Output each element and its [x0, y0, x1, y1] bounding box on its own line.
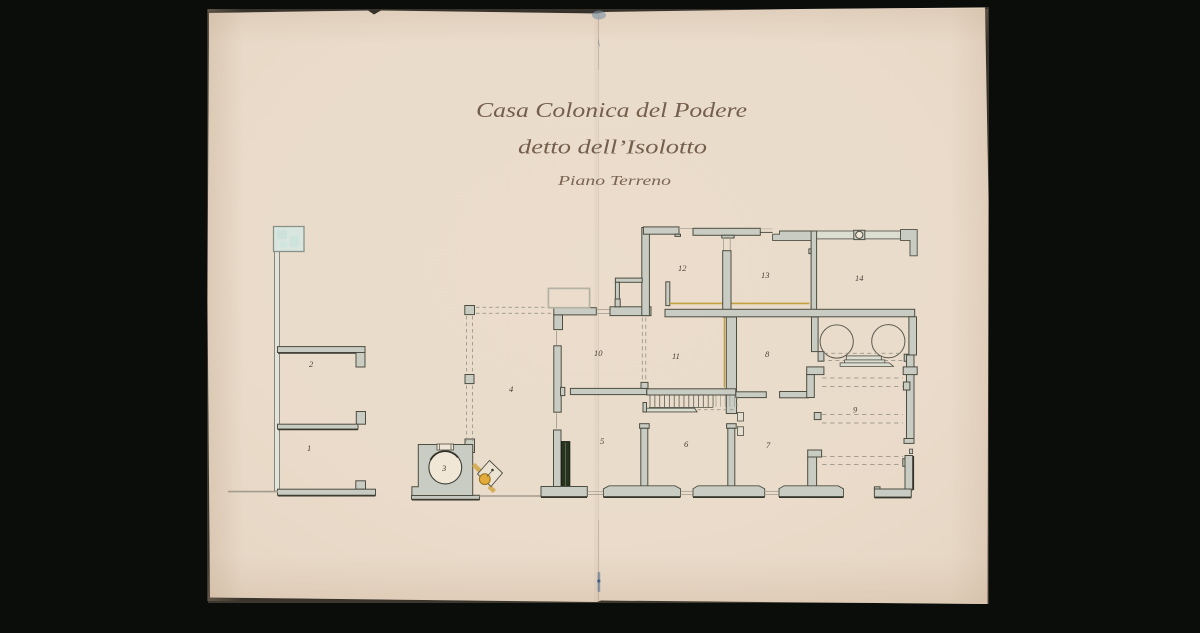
- svg-text:detto dell’Isolotto: detto dell’Isolotto: [518, 137, 707, 159]
- svg-text:1: 1: [307, 443, 311, 453]
- svg-text:14: 14: [855, 273, 864, 283]
- svg-text:12: 12: [678, 263, 687, 273]
- svg-text:10: 10: [594, 348, 603, 358]
- svg-text:Piano Terreno: Piano Terreno: [557, 173, 672, 188]
- svg-text:3: 3: [441, 463, 446, 473]
- svg-text:5: 5: [600, 436, 604, 446]
- svg-text:11: 11: [672, 351, 680, 361]
- svg-text:Casa Colonica del Podere: Casa Colonica del Podere: [476, 98, 747, 122]
- svg-text:13: 13: [761, 270, 770, 280]
